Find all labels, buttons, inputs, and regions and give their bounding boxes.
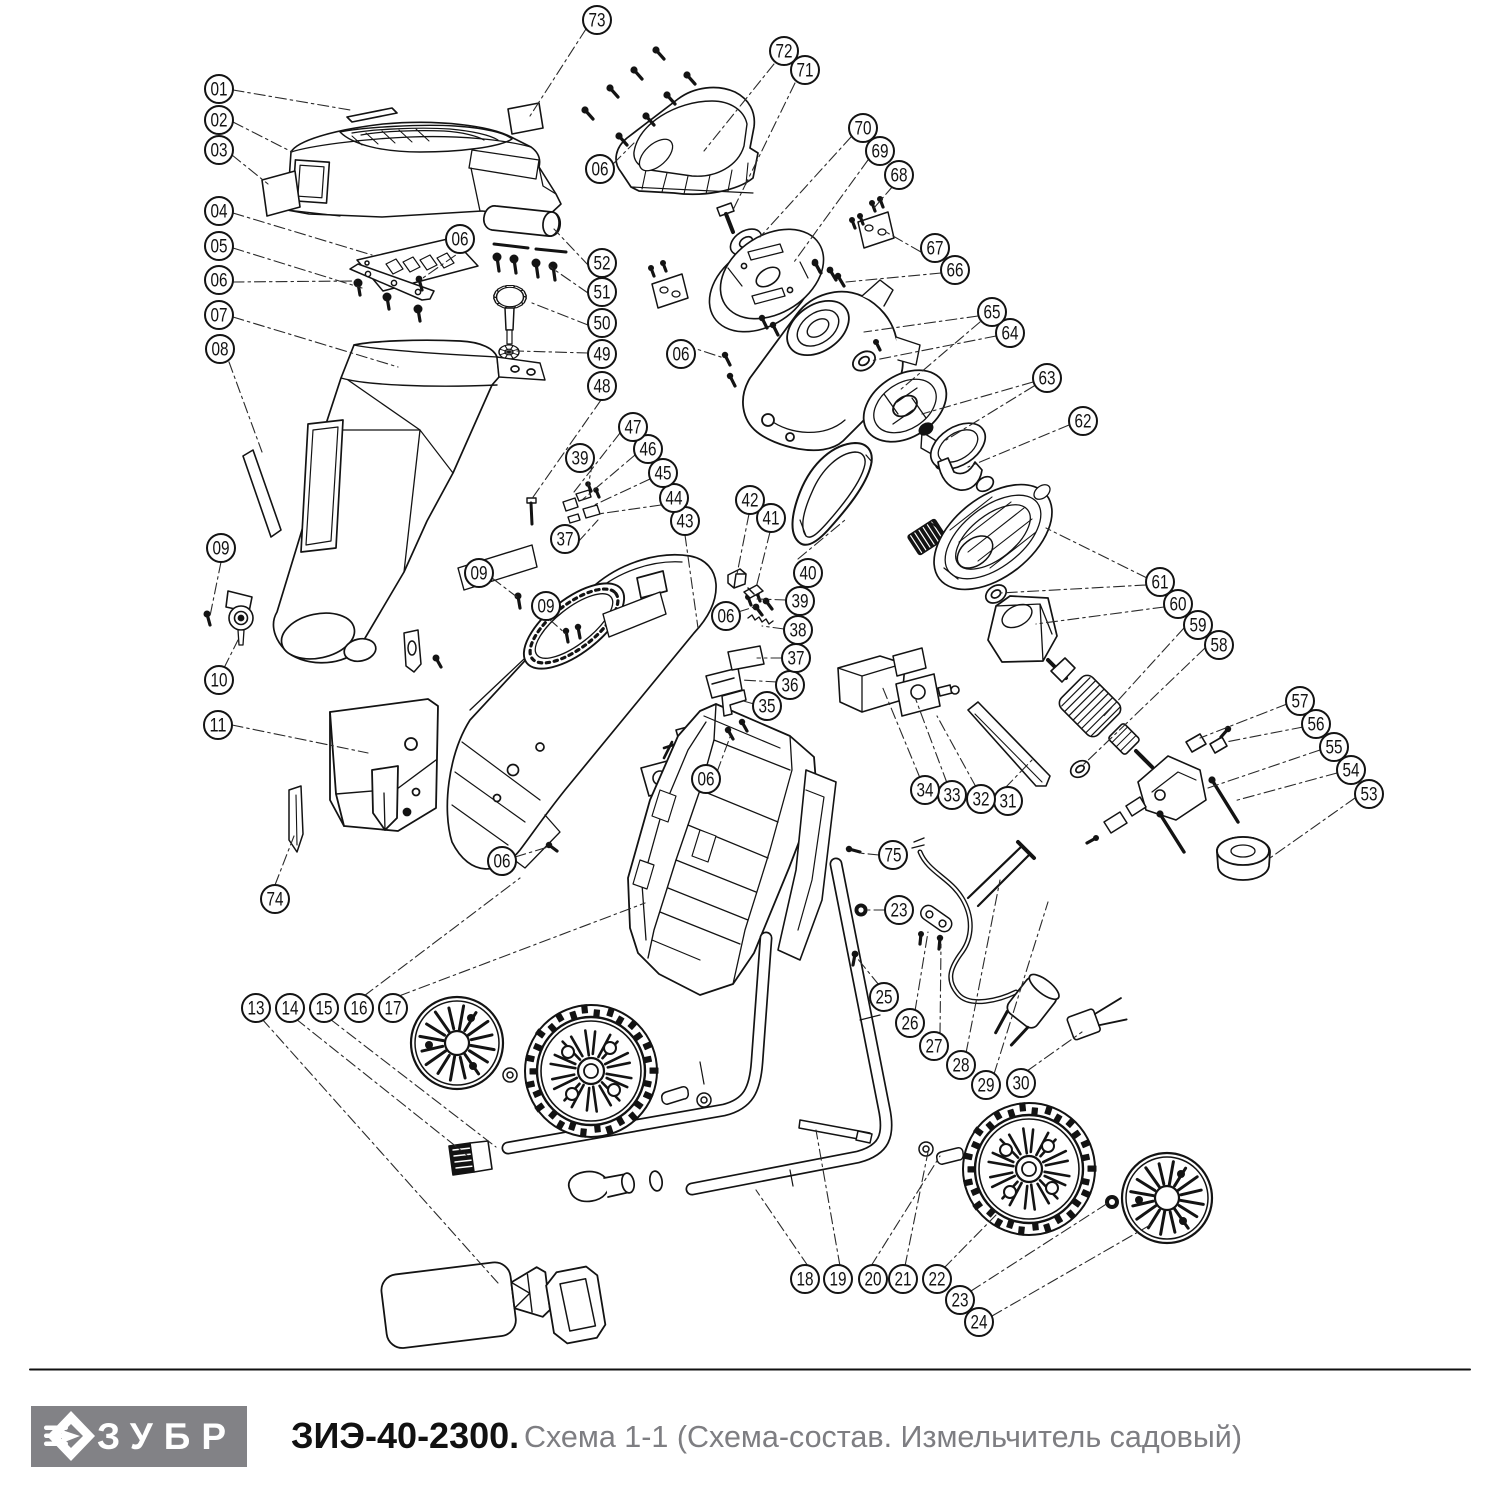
svg-text:30: 30 bbox=[1013, 1074, 1030, 1095]
svg-text:16: 16 bbox=[351, 999, 368, 1020]
svg-text:48: 48 bbox=[594, 377, 611, 398]
svg-text:61: 61 bbox=[1152, 573, 1169, 594]
svg-text:64: 64 bbox=[1002, 324, 1019, 345]
svg-text:23: 23 bbox=[952, 1291, 969, 1312]
svg-text:20: 20 bbox=[865, 1270, 882, 1291]
svg-text:23: 23 bbox=[891, 901, 908, 922]
svg-text:46: 46 bbox=[640, 440, 657, 461]
svg-text:74: 74 bbox=[267, 890, 284, 911]
svg-text:54: 54 bbox=[1343, 761, 1360, 782]
svg-text:31: 31 bbox=[1000, 792, 1017, 813]
svg-text:11: 11 bbox=[210, 716, 227, 737]
svg-text:21: 21 bbox=[895, 1270, 912, 1291]
svg-text:06: 06 bbox=[698, 770, 715, 791]
svg-text:35: 35 bbox=[759, 697, 776, 718]
svg-text:06: 06 bbox=[452, 230, 469, 251]
svg-text:22: 22 bbox=[929, 1270, 946, 1291]
svg-text:01: 01 bbox=[211, 80, 228, 101]
svg-text:18: 18 bbox=[797, 1270, 814, 1291]
svg-text:09: 09 bbox=[538, 597, 555, 618]
svg-text:44: 44 bbox=[666, 489, 683, 510]
svg-text:29: 29 bbox=[978, 1076, 995, 1097]
svg-text:65: 65 bbox=[984, 303, 1001, 324]
svg-text:53: 53 bbox=[1361, 785, 1378, 806]
svg-text:50: 50 bbox=[594, 314, 611, 335]
svg-text:38: 38 bbox=[790, 621, 807, 642]
svg-text:06: 06 bbox=[211, 271, 228, 292]
svg-text:09: 09 bbox=[471, 564, 488, 585]
svg-text:13: 13 bbox=[248, 999, 265, 1020]
svg-text:05: 05 bbox=[211, 237, 228, 258]
svg-text:27: 27 bbox=[926, 1037, 943, 1058]
svg-text:47: 47 bbox=[625, 418, 642, 439]
svg-text:37: 37 bbox=[557, 530, 574, 551]
svg-text:67: 67 bbox=[927, 239, 944, 260]
svg-text:15: 15 bbox=[316, 999, 333, 1020]
svg-text:45: 45 bbox=[655, 464, 672, 485]
svg-text:36: 36 bbox=[782, 676, 799, 697]
svg-text:28: 28 bbox=[953, 1056, 970, 1077]
svg-text:06: 06 bbox=[673, 345, 690, 366]
svg-text:09: 09 bbox=[213, 539, 230, 560]
svg-text:71: 71 bbox=[797, 61, 814, 82]
svg-text:25: 25 bbox=[876, 988, 893, 1009]
svg-text:69: 69 bbox=[872, 142, 889, 163]
svg-text:60: 60 bbox=[1170, 595, 1187, 616]
svg-text:17: 17 bbox=[385, 999, 402, 1020]
svg-text:43: 43 bbox=[677, 512, 694, 533]
svg-text:70: 70 bbox=[855, 119, 872, 140]
svg-text:49: 49 bbox=[594, 345, 611, 366]
svg-text:63: 63 bbox=[1039, 369, 1056, 390]
svg-text:14: 14 bbox=[282, 999, 299, 1020]
svg-text:07: 07 bbox=[211, 306, 228, 327]
svg-text:34: 34 bbox=[917, 781, 934, 802]
svg-text:42: 42 bbox=[742, 491, 759, 512]
svg-text:66: 66 bbox=[947, 261, 964, 282]
svg-text:59: 59 bbox=[1190, 616, 1207, 637]
svg-text:Схема 1-1 (Схема-состав. Измел: Схема 1-1 (Схема-состав. Измельчитель са… bbox=[524, 1420, 1242, 1454]
svg-text:39: 39 bbox=[572, 449, 589, 470]
svg-text:24: 24 bbox=[971, 1313, 988, 1334]
svg-text:51: 51 bbox=[594, 283, 611, 304]
svg-text:26: 26 bbox=[902, 1014, 919, 1035]
svg-text:40: 40 bbox=[800, 564, 817, 585]
svg-text:10: 10 bbox=[211, 671, 228, 692]
svg-text:32: 32 bbox=[973, 790, 990, 811]
svg-text:73: 73 bbox=[589, 11, 606, 32]
svg-text:75: 75 bbox=[885, 846, 902, 867]
svg-text:06: 06 bbox=[718, 607, 735, 628]
svg-text:72: 72 bbox=[776, 42, 793, 63]
svg-text:68: 68 bbox=[891, 166, 908, 187]
svg-text:33: 33 bbox=[944, 786, 961, 807]
svg-text:62: 62 bbox=[1075, 412, 1092, 433]
svg-text:58: 58 bbox=[1211, 636, 1228, 657]
svg-text:08: 08 bbox=[212, 340, 229, 361]
svg-text:55: 55 bbox=[1326, 738, 1343, 759]
svg-text:04: 04 bbox=[211, 202, 228, 223]
svg-text:56: 56 bbox=[1308, 715, 1325, 736]
svg-text:ЗИЭ-40-2300.: ЗИЭ-40-2300. bbox=[291, 1415, 519, 1456]
svg-text:37: 37 bbox=[788, 649, 805, 670]
svg-text:57: 57 bbox=[1292, 692, 1309, 713]
svg-text:52: 52 bbox=[594, 254, 611, 275]
svg-text:03: 03 bbox=[211, 141, 228, 162]
svg-text:02: 02 bbox=[211, 111, 228, 132]
svg-text:06: 06 bbox=[592, 160, 609, 181]
svg-text:ЗУБР: ЗУБР bbox=[97, 1416, 237, 1457]
svg-text:19: 19 bbox=[830, 1270, 847, 1291]
svg-text:39: 39 bbox=[792, 592, 809, 613]
svg-text:41: 41 bbox=[763, 509, 780, 530]
svg-text:06: 06 bbox=[494, 852, 511, 873]
